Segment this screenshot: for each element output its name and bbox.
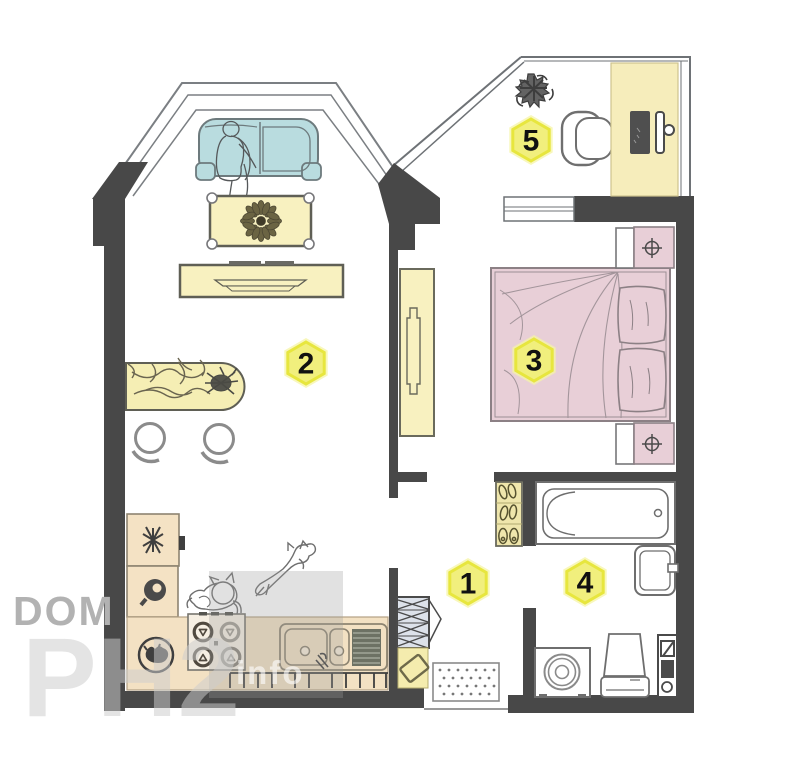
svg-text:5: 5 (523, 125, 540, 158)
svg-text:1: 1 (460, 568, 477, 601)
svg-text:2: 2 (298, 348, 315, 381)
svg-text:info: info (236, 654, 304, 691)
svg-text:PH2: PH2 (22, 615, 240, 740)
svg-text:3: 3 (526, 345, 543, 378)
svg-text:4: 4 (577, 567, 594, 600)
